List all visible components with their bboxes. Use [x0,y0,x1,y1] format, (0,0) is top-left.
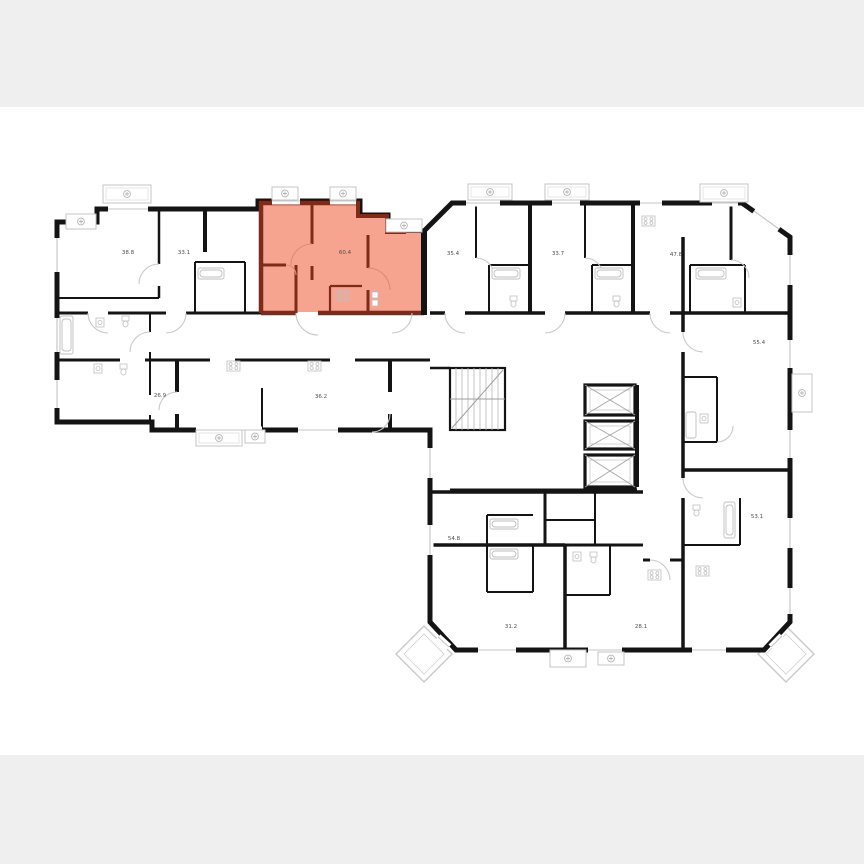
sink-icon [573,552,581,561]
floor-plan-viewer: 38.8 33.1 60.4 35.4 33.7 47.8 55.4 26.9 … [0,0,864,864]
vent-box [598,652,624,665]
sink-icon [700,414,708,423]
sink-icon [96,318,104,327]
apartment-area-label: 47.8 [670,252,683,258]
top-margin-band [0,0,864,107]
bottom-margin-band [0,755,864,864]
selected-apartment-area-label[interactable]: 60.4 [339,250,352,256]
apartment-area-label: 33.7 [552,251,565,257]
apartment-area-label: 36.2 [315,394,327,400]
stairs-icon [450,368,505,430]
vent-box [386,219,422,232]
sink-icon [94,364,102,373]
apartment-area-label: 54.8 [448,536,461,542]
floor-plan: 38.8 33.1 60.4 35.4 33.7 47.8 55.4 26.9 … [0,0,864,864]
vent-box [792,374,812,412]
vent-box [66,214,96,229]
vent-box [468,184,512,200]
apartment-area-label: 35.4 [447,251,460,257]
elevator-x-icon [585,385,635,415]
vent-box [545,184,589,200]
vent-box [700,184,748,202]
vent-box [330,187,356,200]
apartment-area-label: 26.9 [154,393,167,399]
apartment-area-label: 55.4 [753,340,766,346]
apartment-area-label: 28.1 [635,624,647,630]
vent-box [103,185,151,203]
elevator-x-icon [585,421,635,449]
apartment-area-label: 38.8 [122,250,135,256]
vent-box [550,650,586,667]
apartment-area-label: 31.2 [505,624,517,630]
elevator-x-icon [585,455,635,487]
apartment-area-label: 53.1 [751,514,763,520]
sink-icon [733,298,741,307]
apartment-area-label: 33.1 [178,250,190,256]
vent-box [272,187,298,200]
vent-box [196,430,242,446]
elevator-shafts [585,385,635,487]
vent-box [245,430,265,443]
